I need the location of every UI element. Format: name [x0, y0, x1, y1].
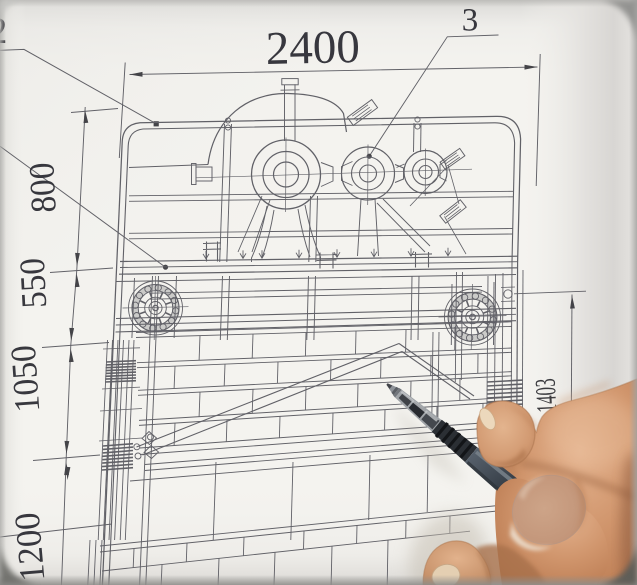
svg-text:3: 3: [462, 3, 479, 39]
svg-text:2400: 2400: [265, 21, 360, 75]
svg-text:1050: 1050: [3, 344, 48, 414]
svg-text:800: 800: [21, 162, 64, 214]
svg-text:550: 550: [12, 257, 55, 309]
svg-text:1200: 1200: [7, 511, 53, 583]
